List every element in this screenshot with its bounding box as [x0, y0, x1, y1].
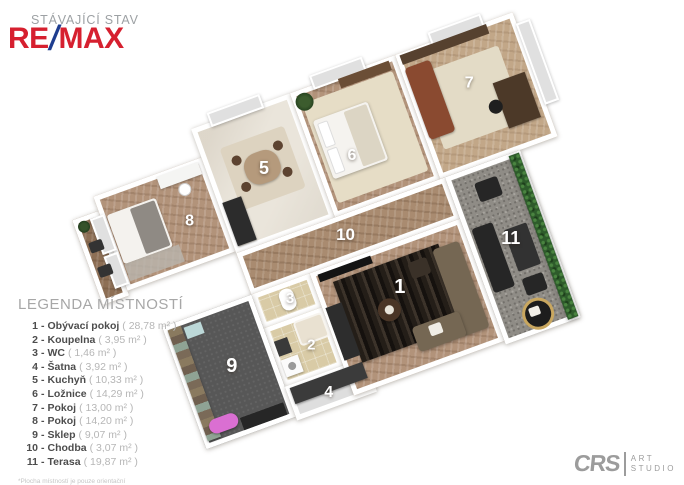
legend-row-5: 5-Kuchyň( 10,33 m² )	[18, 374, 188, 388]
studio-logo-divider	[624, 452, 626, 476]
legend-room-name: Pokoj	[48, 415, 77, 429]
legend-title: LEGENDA MÍSTNOSTÍ	[18, 296, 188, 313]
plan-label-6: 6	[347, 147, 356, 165]
legend-separator: -	[41, 402, 45, 416]
legend-num: 11	[18, 456, 38, 470]
legend-num: 3	[18, 347, 38, 361]
legend-num: 9	[18, 429, 38, 443]
studio-initials: CRS	[572, 450, 620, 477]
plan-label-8: 8	[185, 212, 194, 230]
legend-num: 5	[18, 374, 38, 388]
legend-separator: -	[41, 361, 45, 375]
plan-label-9: 9	[226, 355, 237, 378]
legend-row-10: 10-Chodba( 3,07 m² )	[18, 442, 188, 456]
legend-num: 1	[18, 320, 38, 334]
legend-separator: -	[41, 456, 45, 470]
art-studio-logo: CRS ART STUDIO	[574, 450, 676, 477]
legend-num: 7	[18, 402, 38, 416]
plan-label-7: 7	[465, 74, 474, 92]
legend-room-area: ( 3,92 m² )	[79, 361, 127, 375]
legend-separator: -	[41, 415, 45, 429]
legend-num: 8	[18, 415, 38, 429]
plan-label-11: 11	[501, 228, 520, 249]
legend-num: 4	[18, 361, 38, 375]
legend-room-area: ( 1,46 m² )	[68, 347, 116, 361]
legend-room-area: ( 28,78 m² )	[122, 320, 176, 334]
legend-room-area: ( 3,95 m² )	[98, 334, 146, 348]
legend-room-area: ( 10,33 m² )	[89, 374, 143, 388]
legend-separator: -	[41, 429, 45, 443]
room-legend: LEGENDA MÍSTNOSTÍ 1-Obývací pokoj( 28,78…	[18, 296, 188, 485]
legend-row-3: 3-WC( 1,46 m² )	[18, 347, 188, 361]
legend-row-7: 7-Pokoj( 13,00 m² )	[18, 402, 188, 416]
legend-room-name: Koupelna	[48, 334, 96, 348]
legend-num: 10	[18, 442, 38, 456]
legend-room-area: ( 19,87 m² )	[84, 456, 138, 470]
legend-room-name: Chodba	[48, 442, 87, 456]
legend-room-area: ( 3,07 m² )	[90, 442, 138, 456]
remax-logo-re: RE	[8, 22, 49, 55]
legend-row-2: 2-Koupelna( 3,95 m² )	[18, 334, 188, 348]
legend-footnote: *Plocha místností je pouze orientační	[18, 478, 188, 485]
plan-label-4: 4	[324, 384, 333, 402]
legend-room-name: Obývací pokoj	[48, 320, 120, 334]
legend-room-area: ( 14,29 m² )	[90, 388, 144, 402]
plan-label-5: 5	[259, 158, 269, 179]
legend-room-name: Šatna	[48, 361, 77, 375]
legend-num: 6	[18, 388, 38, 402]
legend-row-1: 1-Obývací pokoj( 28,78 m² )	[18, 320, 188, 334]
legend-row-4: 4-Šatna( 3,92 m² )	[18, 361, 188, 375]
studio-word-studio: STUDIO	[631, 464, 676, 474]
legend-num: 2	[18, 334, 38, 348]
legend-room-name: Terasa	[48, 456, 81, 470]
legend-row-8: 8-Pokoj( 14,20 m² )	[18, 415, 188, 429]
legend-separator: -	[41, 320, 45, 334]
plan-label-10: 10	[336, 225, 355, 245]
legend-separator: -	[41, 334, 45, 348]
legend-room-area: ( 9,07 m² )	[79, 429, 127, 443]
legend-room-name: Kuchyň	[48, 374, 87, 388]
legend-row-6: 6-Ložnice( 14,29 m² )	[18, 388, 188, 402]
legend-room-name: Pokoj	[48, 402, 77, 416]
legend-separator: -	[41, 347, 45, 361]
plan-label-1: 1	[394, 276, 405, 299]
plan-label-2: 2	[307, 337, 315, 354]
remax-logo: RE/MAX	[8, 24, 124, 54]
legend-row-9: 9-Sklep( 9,07 m² )	[18, 429, 188, 443]
legend-room-area: ( 14,20 m² )	[79, 415, 133, 429]
legend-room-area: ( 13,00 m² )	[79, 402, 133, 416]
legend-separator: -	[41, 374, 45, 388]
legend-separator: -	[41, 442, 45, 456]
plan-label-3: 3	[286, 290, 294, 307]
legend-room-name: Sklep	[48, 429, 76, 443]
legend-row-11: 11-Terasa( 19,87 m² )	[18, 456, 188, 470]
studio-wordmark: ART STUDIO	[631, 454, 676, 474]
studio-word-art: ART	[631, 454, 676, 464]
legend-room-name: Ložnice	[48, 388, 87, 402]
legend-separator: -	[41, 388, 45, 402]
legend-room-name: WC	[48, 347, 66, 361]
remax-logo-max: MAX	[59, 22, 124, 55]
